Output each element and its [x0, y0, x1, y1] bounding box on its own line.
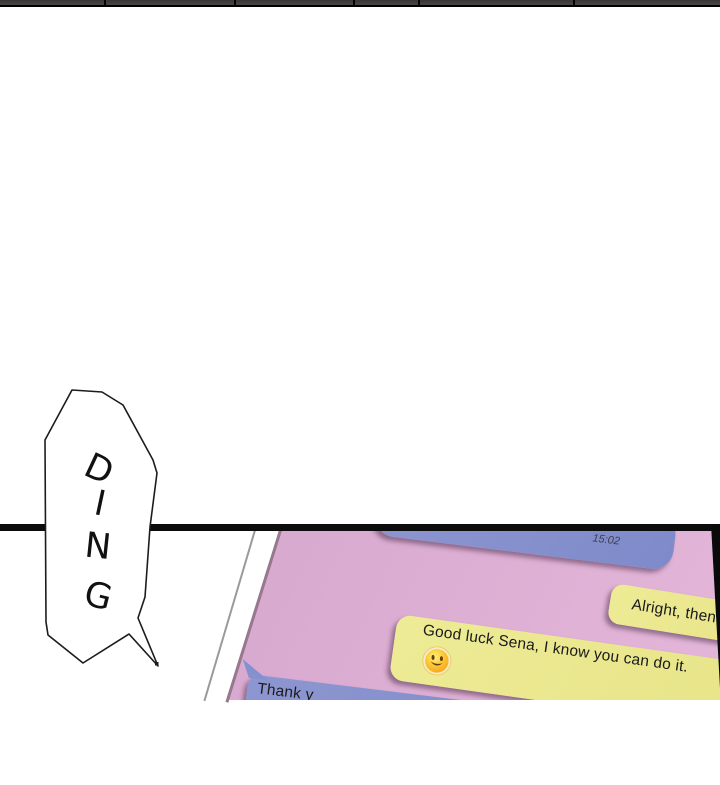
sfx-letter-d: D [78, 446, 119, 494]
message-text: Alright, then. [630, 596, 720, 628]
phone-chat-screen: 15:02 Alright, then. Good luck Sena, I k… [0, 0, 720, 700]
sfx-tail-dot [155, 662, 159, 666]
panel-segment-divider [418, 0, 420, 5]
message-timestamp: 15:02 [592, 532, 621, 547]
message-text: Thank y [256, 680, 314, 705]
previous-panel-edge [0, 0, 720, 7]
panel-segment-divider [234, 0, 236, 5]
panel-divider-bar [0, 524, 720, 531]
chat-bubble-sent-alright: Alright, then. [607, 583, 720, 646]
panel-segment-divider [573, 0, 575, 5]
smiley-face-emoji [420, 644, 454, 678]
panel-segment-divider [104, 0, 106, 5]
sfx-letter-g: G [80, 574, 116, 619]
sfx-letter-i: I [91, 483, 109, 524]
bubble-tail [241, 659, 271, 680]
sfx-letter-n: N [83, 526, 113, 569]
panel-segment-divider [353, 0, 355, 5]
message-text: Good luck Sena, I know you can do it. [422, 622, 690, 677]
